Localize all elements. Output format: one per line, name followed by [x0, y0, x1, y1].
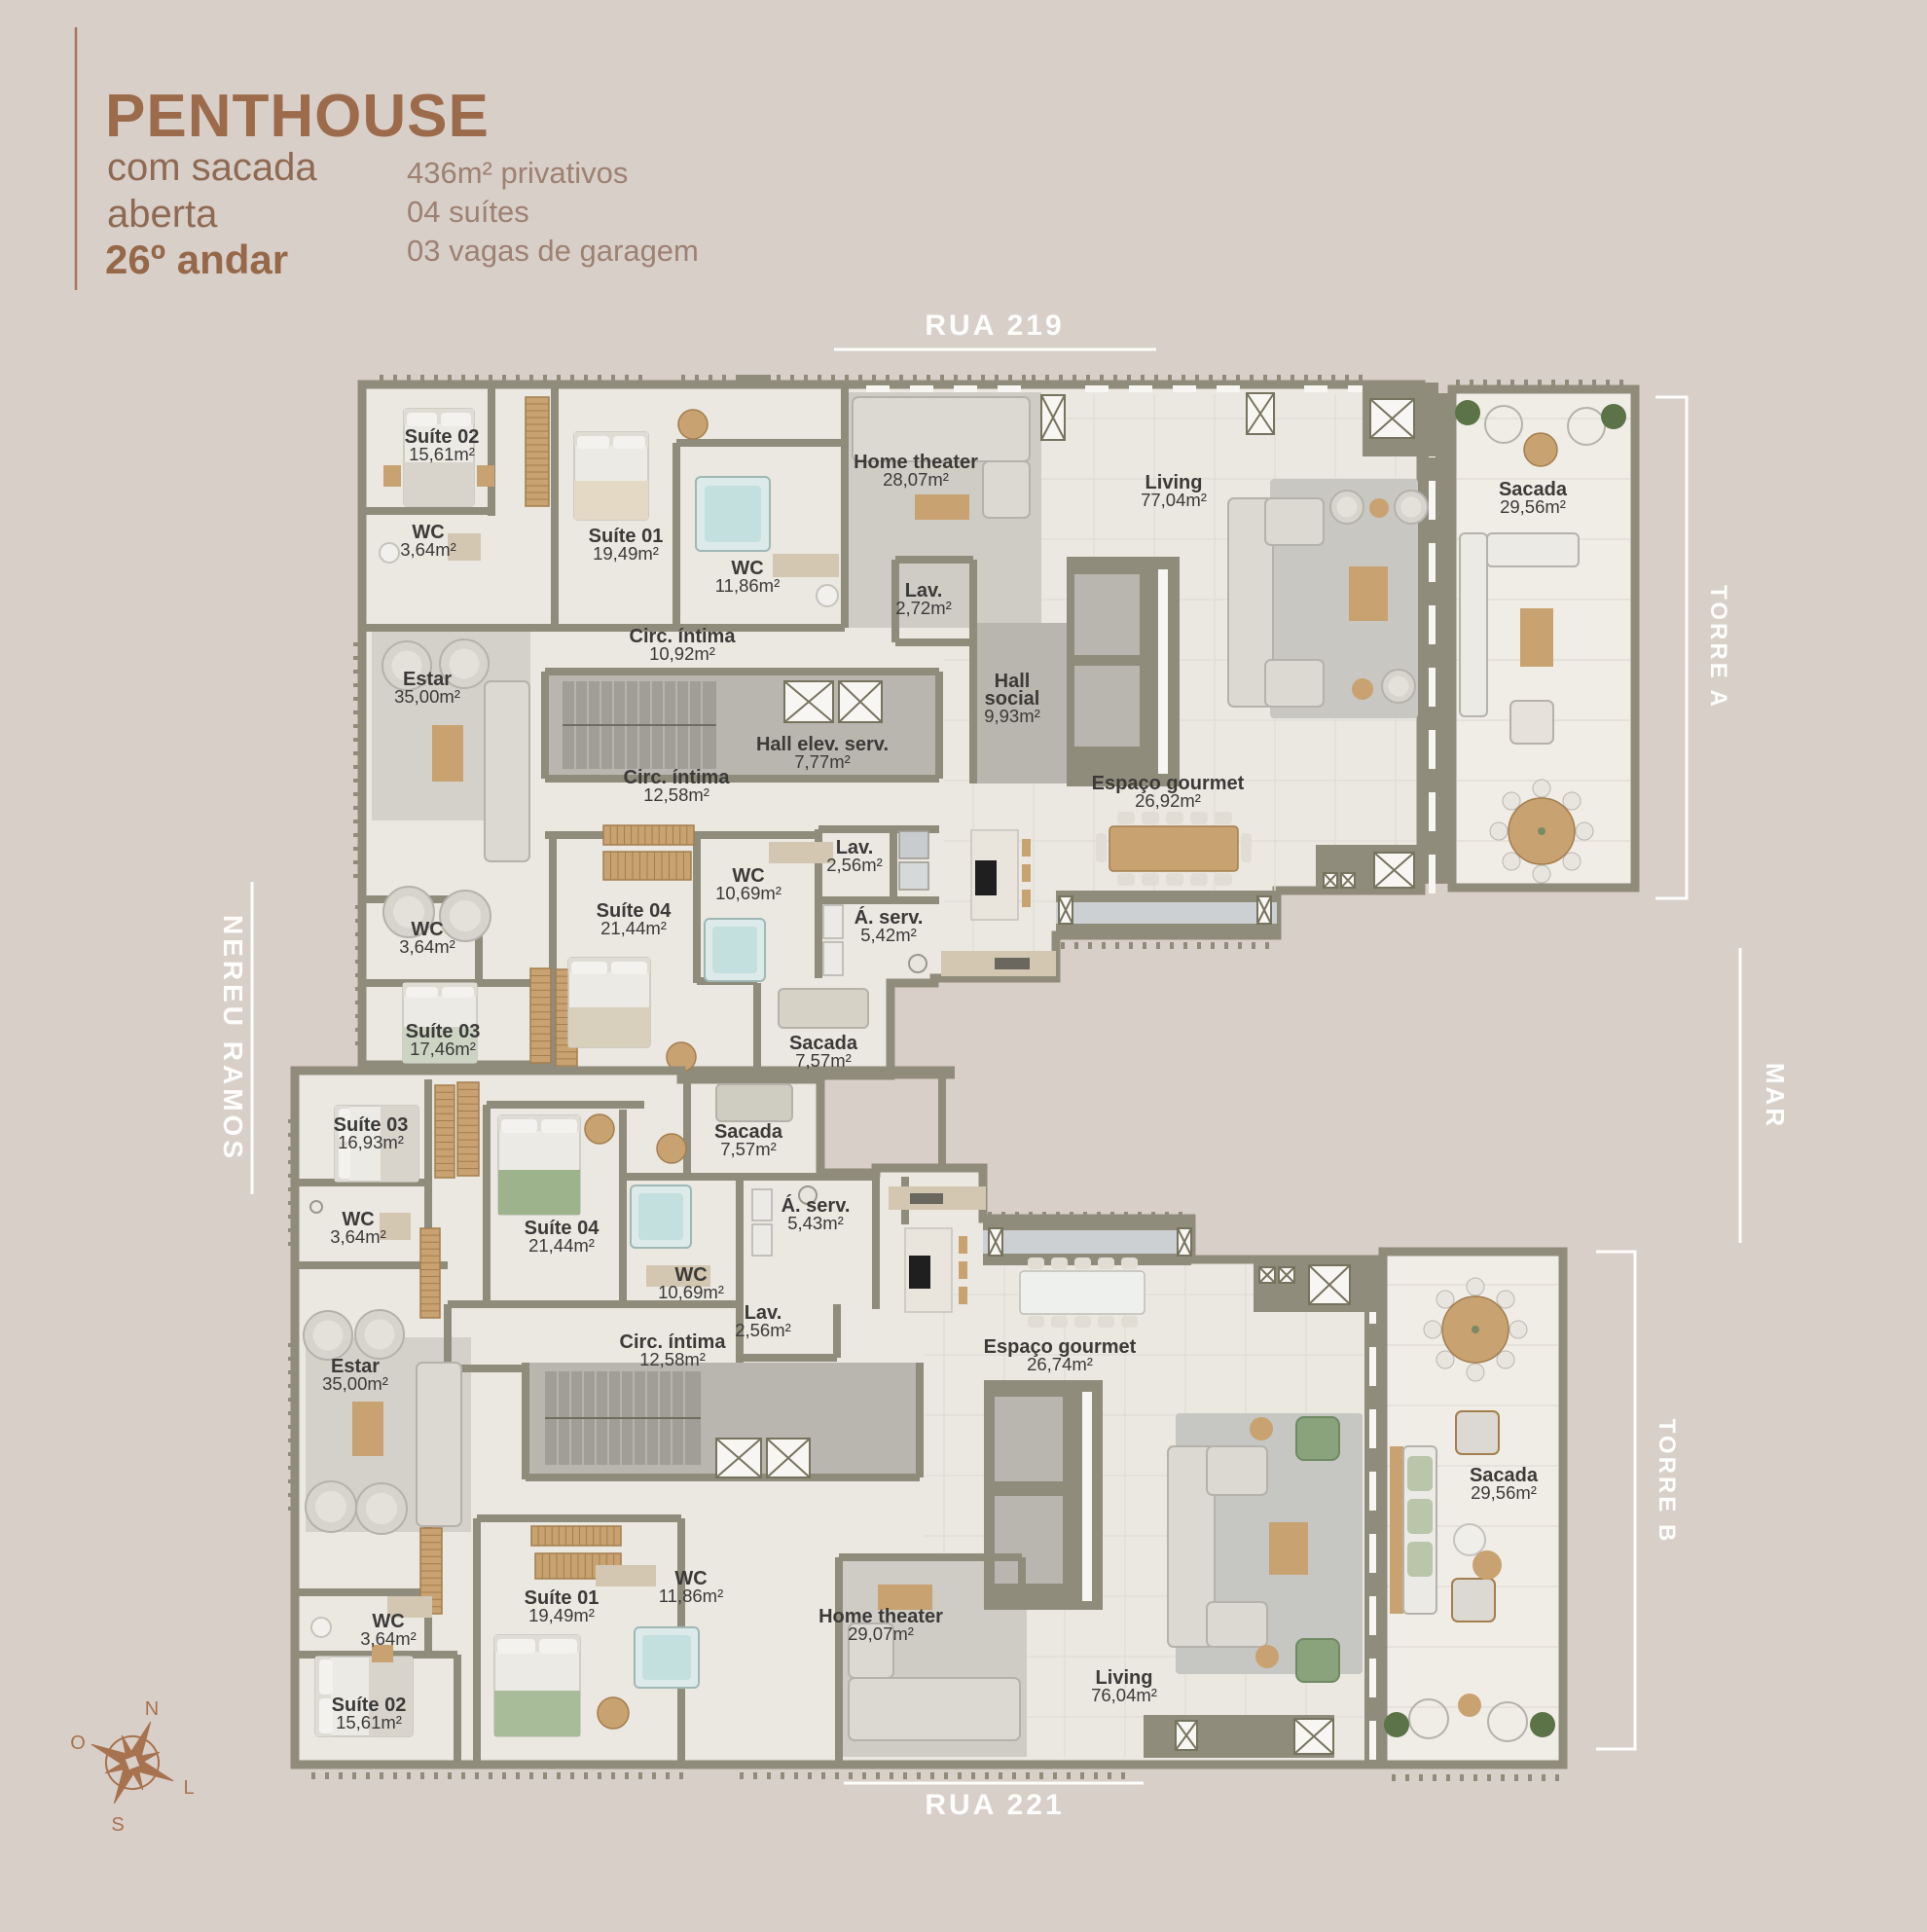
svg-text:29,56m²: 29,56m² — [1500, 496, 1566, 517]
svg-text:03 vagas de garagem: 03 vagas de garagem — [407, 234, 699, 268]
svg-text:N: N — [145, 1698, 159, 1720]
svg-text:35,00m²: 35,00m² — [394, 686, 460, 707]
svg-text:2,56m²: 2,56m² — [735, 1320, 791, 1340]
svg-text:5,42m²: 5,42m² — [860, 925, 917, 945]
svg-text:3,64m²: 3,64m² — [360, 1628, 417, 1649]
svg-text:12,58m²: 12,58m² — [643, 784, 709, 805]
svg-text:O: O — [70, 1732, 86, 1754]
svg-text:3,64m²: 3,64m² — [399, 936, 455, 957]
svg-text:12,58m²: 12,58m² — [639, 1349, 706, 1369]
svg-text:436m² privativos: 436m² privativos — [407, 156, 628, 190]
svg-text:2,56m²: 2,56m² — [826, 855, 883, 875]
svg-text:26,74m²: 26,74m² — [1027, 1354, 1093, 1374]
svg-text:5,43m²: 5,43m² — [787, 1213, 844, 1233]
svg-text:19,49m²: 19,49m² — [593, 543, 659, 564]
svg-text:10,69m²: 10,69m² — [658, 1282, 724, 1302]
svg-text:7,57m²: 7,57m² — [720, 1139, 777, 1159]
svg-text:28,07m²: 28,07m² — [883, 469, 949, 490]
svg-text:2,72m²: 2,72m² — [895, 598, 952, 618]
svg-text:3,64m²: 3,64m² — [400, 539, 456, 560]
svg-text:21,44m²: 21,44m² — [528, 1235, 595, 1256]
svg-text:S: S — [111, 1814, 124, 1836]
svg-text:aberta: aberta — [107, 193, 218, 236]
svg-text:15,61m²: 15,61m² — [409, 444, 475, 464]
svg-text:26º andar: 26º andar — [105, 237, 288, 282]
svg-text:77,04m²: 77,04m² — [1141, 490, 1207, 510]
svg-text:76,04m²: 76,04m² — [1091, 1685, 1157, 1705]
svg-text:10,92m²: 10,92m² — [649, 643, 715, 664]
svg-text:7,77m²: 7,77m² — [794, 751, 851, 772]
svg-text:04 suítes: 04 suítes — [407, 195, 529, 229]
svg-text:26,92m²: 26,92m² — [1135, 790, 1201, 811]
svg-text:21,44m²: 21,44m² — [600, 918, 667, 938]
svg-text:7,57m²: 7,57m² — [795, 1050, 852, 1071]
svg-text:10,69m²: 10,69m² — [715, 883, 782, 903]
svg-text:MAR: MAR — [1761, 1063, 1790, 1129]
svg-text:11,86m²: 11,86m² — [715, 575, 781, 596]
svg-text:17,46m²: 17,46m² — [410, 1039, 476, 1059]
svg-text:9,93m²: 9,93m² — [984, 706, 1040, 726]
svg-text:35,00m²: 35,00m² — [322, 1373, 388, 1394]
svg-text:TORRE B: TORRE B — [1654, 1419, 1680, 1545]
svg-text:29,07m²: 29,07m² — [848, 1623, 914, 1644]
svg-text:19,49m²: 19,49m² — [528, 1605, 595, 1625]
svg-text:PENTHOUSE: PENTHOUSE — [105, 83, 490, 150]
svg-text:NEREU RAMOS: NEREU RAMOS — [218, 915, 248, 1162]
svg-text:11,86m²: 11,86m² — [659, 1586, 724, 1606]
svg-text:RUA 221: RUA 221 — [925, 1789, 1064, 1821]
svg-text:TORRE A: TORRE A — [1705, 585, 1731, 710]
svg-text:29,56m²: 29,56m² — [1471, 1482, 1537, 1503]
svg-text:3,64m²: 3,64m² — [330, 1226, 386, 1247]
svg-text:L: L — [183, 1777, 194, 1799]
svg-text:16,93m²: 16,93m² — [338, 1132, 404, 1152]
svg-text:15,61m²: 15,61m² — [336, 1712, 402, 1732]
svg-text:com sacada: com sacada — [107, 146, 317, 189]
svg-text:RUA 219: RUA 219 — [925, 310, 1064, 342]
